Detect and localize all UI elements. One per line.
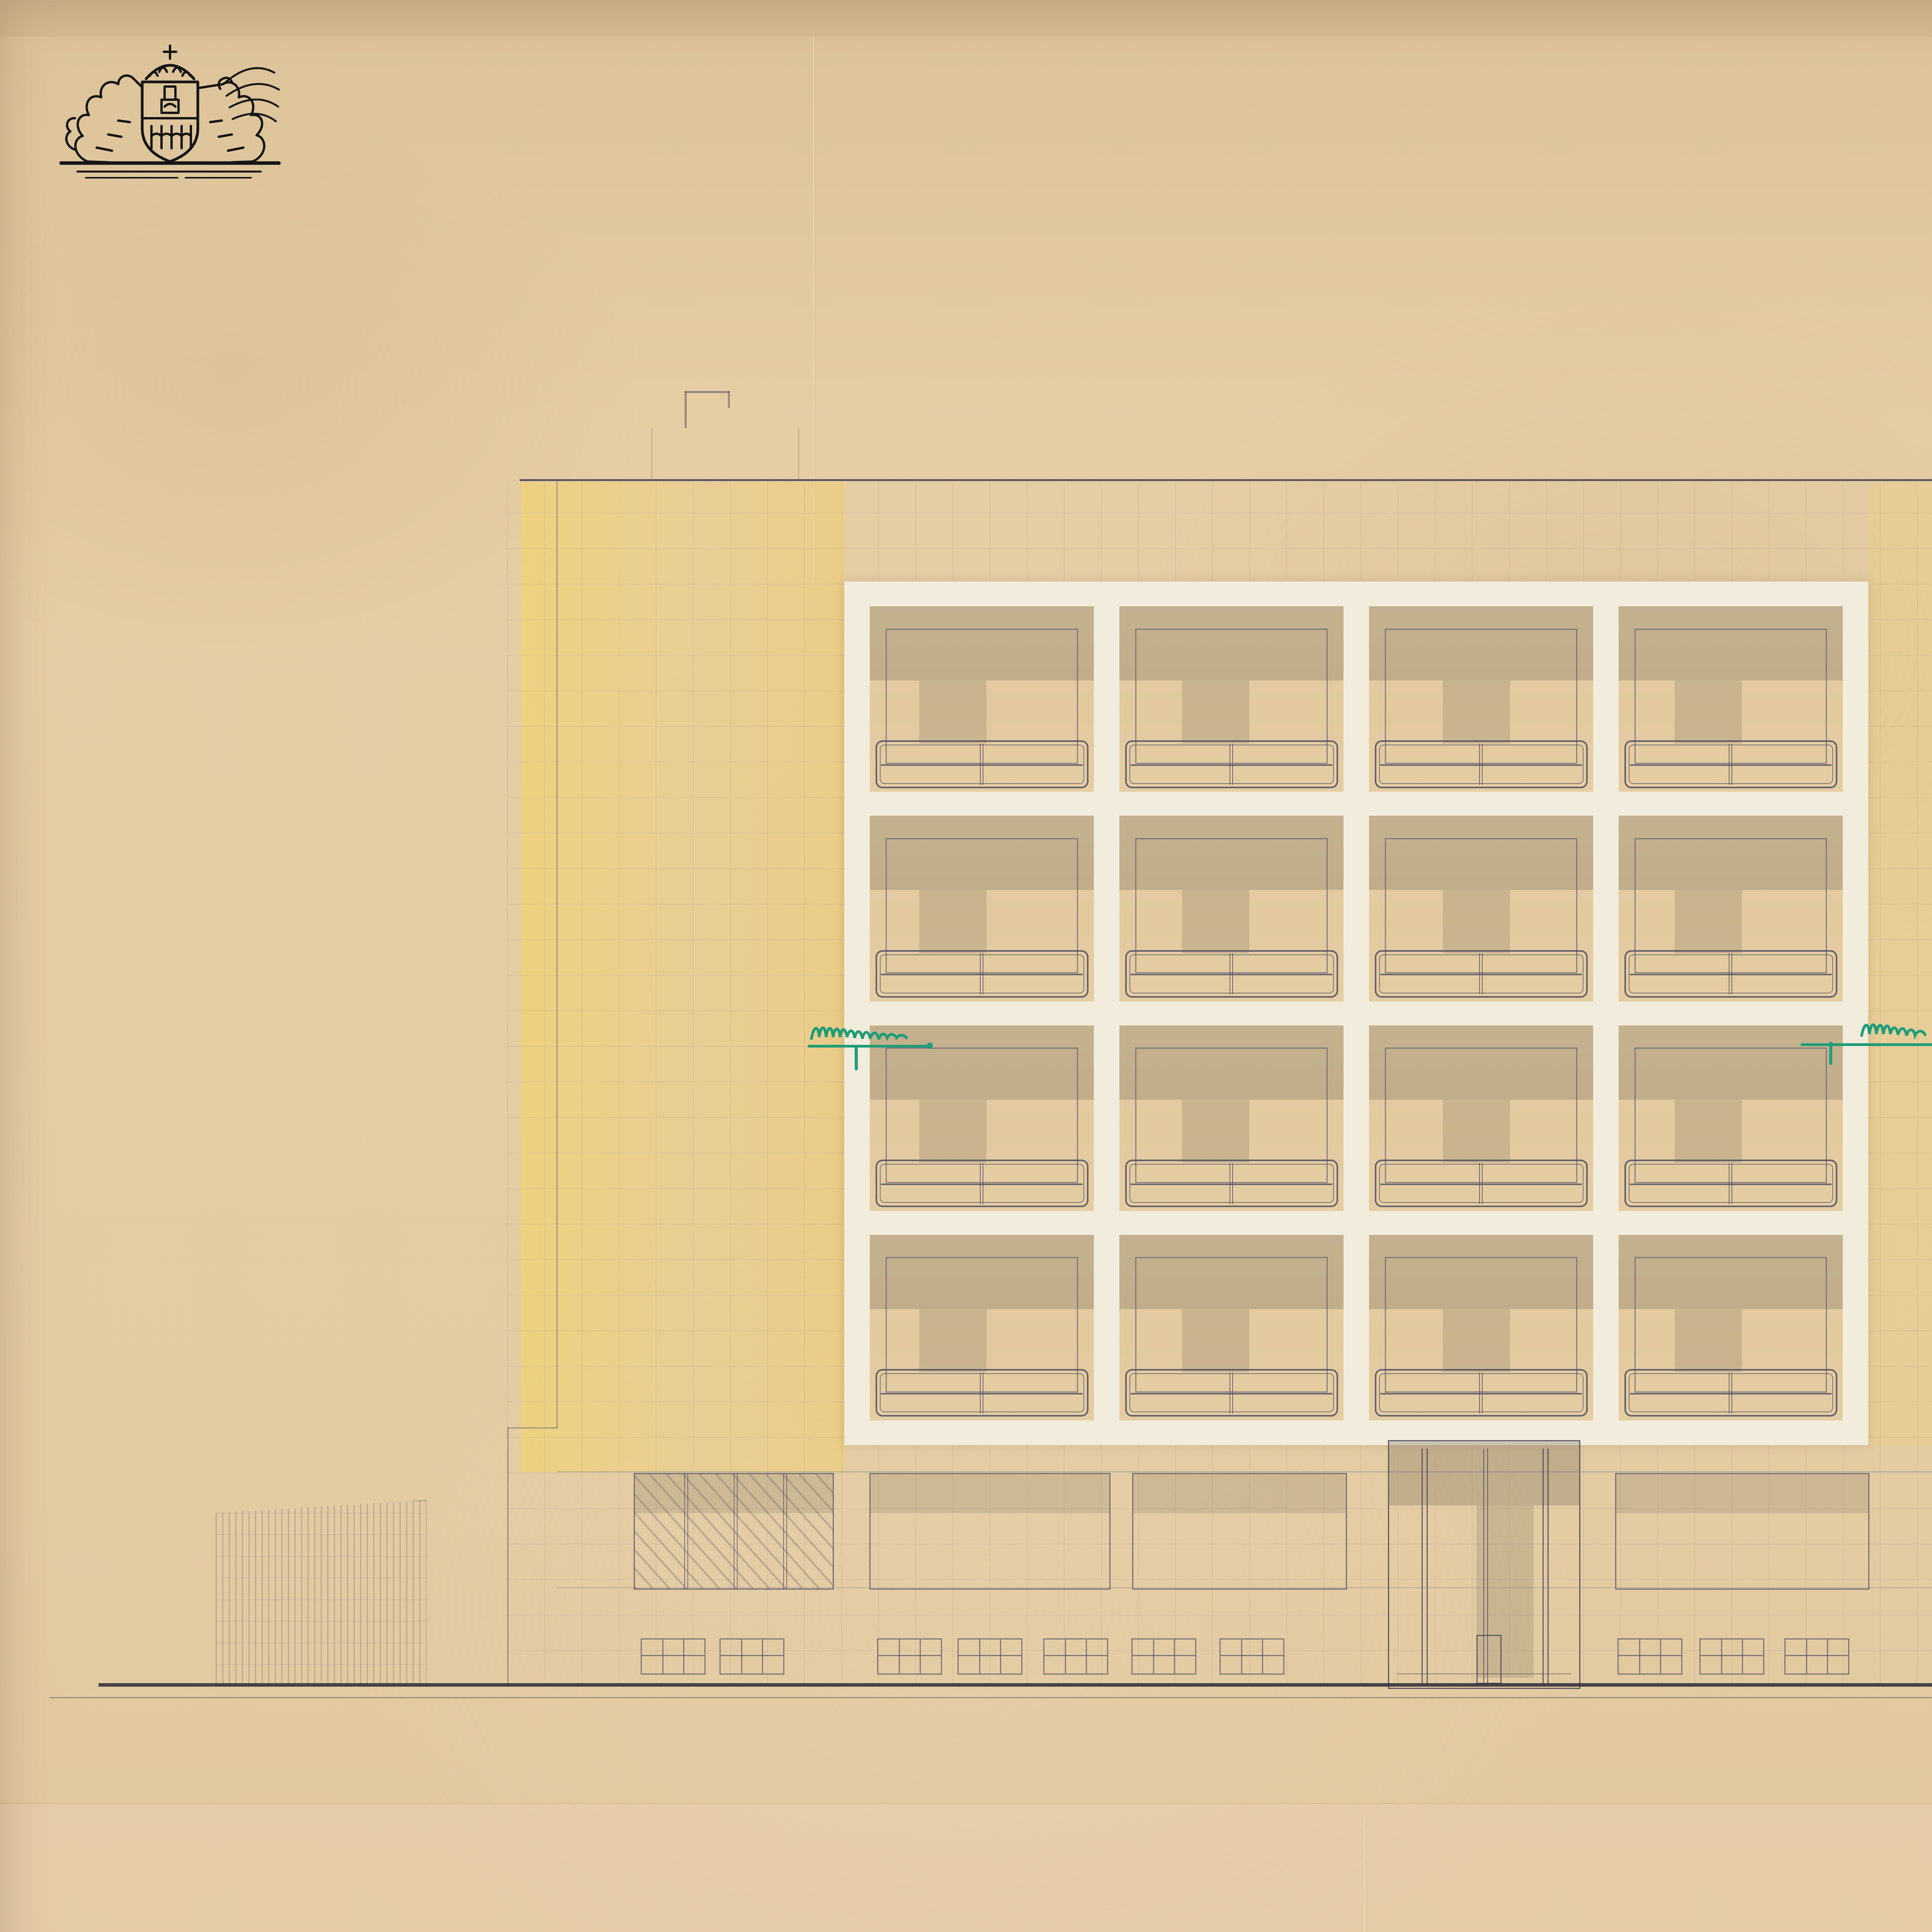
balcony-railing xyxy=(1624,740,1837,788)
window-mullion xyxy=(920,1639,921,1673)
window-mullion xyxy=(979,1639,980,1673)
facade-left-edge xyxy=(556,480,558,1428)
railing-divider xyxy=(1230,1372,1233,1413)
neighbor-building-hatch xyxy=(216,1500,427,1687)
window-mid-bar xyxy=(1044,1655,1107,1656)
party-wall-line xyxy=(798,428,799,480)
window-mullion xyxy=(1827,1639,1828,1673)
window-mid-bar xyxy=(721,1655,783,1656)
green-tick xyxy=(1829,1042,1832,1065)
balcony-railing xyxy=(1125,1160,1338,1207)
party-wall-line xyxy=(651,428,652,480)
shop-window-mullion xyxy=(734,1474,738,1588)
railing-divider xyxy=(980,1163,983,1204)
green-scribble-icon xyxy=(808,1019,928,1046)
balcony-railing xyxy=(876,950,1088,998)
railing-divider xyxy=(980,1372,983,1413)
railing-divider xyxy=(1230,953,1233,994)
facade-window-cell xyxy=(870,606,1094,792)
basement-window xyxy=(1699,1638,1764,1675)
green-annotation-left xyxy=(753,1016,1009,1105)
railing-divider xyxy=(980,744,983,785)
balcony-railing xyxy=(876,1369,1088,1417)
entrance-door-leaf xyxy=(1543,1449,1549,1684)
pencil-tick-mark xyxy=(728,391,730,408)
window-mullion xyxy=(741,1639,742,1673)
facade-window-cell xyxy=(1119,816,1344,1001)
window-mullion xyxy=(899,1639,900,1673)
window-mid-bar xyxy=(642,1655,704,1656)
facade-window-cell xyxy=(1619,1235,1843,1420)
window-mullion xyxy=(1174,1639,1175,1673)
railing-divider xyxy=(1479,953,1483,994)
green-underline-dot xyxy=(927,1043,933,1049)
railing-divider xyxy=(1479,744,1483,785)
storefront-window xyxy=(869,1473,1111,1590)
storefront-window xyxy=(1615,1473,1869,1590)
basement-window xyxy=(1131,1638,1196,1675)
window-mid-bar xyxy=(959,1655,1021,1656)
railing-divider xyxy=(1729,953,1732,994)
green-underline xyxy=(1801,1043,1932,1046)
pasted-facade-overlay xyxy=(844,582,1868,1445)
entrance-threshold-line xyxy=(1397,1673,1572,1674)
window-mullion xyxy=(1241,1639,1242,1673)
window-mullion xyxy=(662,1639,663,1673)
balcony-railing xyxy=(1624,1160,1837,1207)
pencil-tick-mark xyxy=(685,391,687,428)
window-mullion xyxy=(1742,1639,1743,1673)
balcony-railing xyxy=(1375,1369,1588,1417)
window-mid-bar xyxy=(1619,1655,1681,1656)
railing-divider xyxy=(1729,1372,1732,1413)
window-mullion xyxy=(1153,1639,1154,1673)
balcony-railing xyxy=(1125,950,1338,998)
balcony-railing xyxy=(1624,950,1837,998)
basement-window xyxy=(641,1638,706,1675)
pencil-tick-mark xyxy=(685,391,730,393)
window-mid-bar xyxy=(1221,1655,1283,1656)
window-mullion xyxy=(1806,1639,1807,1673)
facade-window-cell xyxy=(1369,1235,1593,1420)
basement-window xyxy=(877,1638,942,1675)
balcony-railing xyxy=(1375,740,1588,788)
basement-window xyxy=(1617,1638,1682,1675)
green-tick xyxy=(855,1045,858,1070)
facade-window-cell xyxy=(1369,606,1593,792)
railing-divider xyxy=(1479,1372,1483,1413)
entrance-portal xyxy=(1388,1440,1580,1689)
facade-window-cell xyxy=(1119,606,1344,792)
balcony-railing xyxy=(876,1160,1088,1207)
railing-divider xyxy=(980,953,983,994)
facade-window-cell xyxy=(1619,606,1843,792)
railing-divider xyxy=(1729,744,1732,785)
balcony-railing xyxy=(1375,950,1588,998)
cornice-line xyxy=(520,479,1932,481)
window-mullion xyxy=(683,1639,684,1673)
balcony-railing xyxy=(1125,740,1338,788)
ground-line-thin xyxy=(49,1697,1932,1698)
basement-window xyxy=(1043,1638,1108,1675)
shop-window-mullion xyxy=(783,1474,787,1588)
basement-window xyxy=(719,1638,784,1675)
balcony-railing xyxy=(1624,1369,1837,1417)
window-mullion xyxy=(762,1639,763,1673)
storefront-top-line xyxy=(556,1471,1932,1472)
window-mullion xyxy=(1000,1639,1001,1673)
window-mullion xyxy=(1065,1639,1066,1673)
basement-window xyxy=(1219,1638,1284,1675)
balcony-railing xyxy=(1125,1369,1338,1417)
green-underline xyxy=(808,1045,928,1048)
facade-window-cell xyxy=(1119,1026,1344,1211)
ground-line xyxy=(99,1683,1932,1687)
entrance-door-leaf xyxy=(1422,1449,1428,1684)
entrance-door-plate xyxy=(1476,1635,1502,1684)
facade-window-cell xyxy=(1369,816,1593,1001)
balcony-railing xyxy=(1375,1160,1588,1207)
window-mid-bar xyxy=(878,1655,941,1656)
facade-left-lower-edge xyxy=(507,1427,509,1687)
facade-window-cell xyxy=(1119,1235,1344,1420)
window-mid-bar xyxy=(1701,1655,1763,1656)
window-mullion xyxy=(1086,1639,1087,1673)
window-mullion xyxy=(1721,1639,1722,1673)
facade-window-cell xyxy=(870,816,1094,1001)
window-mid-bar xyxy=(1133,1655,1195,1656)
railing-divider xyxy=(1230,744,1233,785)
facade-window-cell xyxy=(1619,816,1843,1001)
window-mullion xyxy=(1262,1639,1263,1673)
green-scribble-icon xyxy=(1859,1016,1932,1042)
facade-window-cell xyxy=(1369,1026,1593,1211)
balcony-railing xyxy=(876,740,1088,788)
storefront-window-hatched xyxy=(634,1473,834,1590)
railing-divider xyxy=(1479,1163,1483,1204)
shop-window-mullion xyxy=(684,1474,688,1588)
basement-window xyxy=(1784,1638,1849,1675)
window-mullion xyxy=(1639,1639,1640,1673)
window-mullion xyxy=(1660,1639,1661,1673)
storefront-window xyxy=(1132,1473,1347,1590)
green-annotation-right xyxy=(1801,1015,1932,1100)
basement-window xyxy=(957,1638,1022,1675)
facade-left-step xyxy=(507,1427,558,1429)
elevation-drawing xyxy=(0,0,1932,1932)
facade-window-cell xyxy=(870,1235,1094,1420)
railing-divider xyxy=(1729,1163,1732,1204)
railing-divider xyxy=(1230,1163,1233,1204)
window-mid-bar xyxy=(1786,1655,1848,1656)
